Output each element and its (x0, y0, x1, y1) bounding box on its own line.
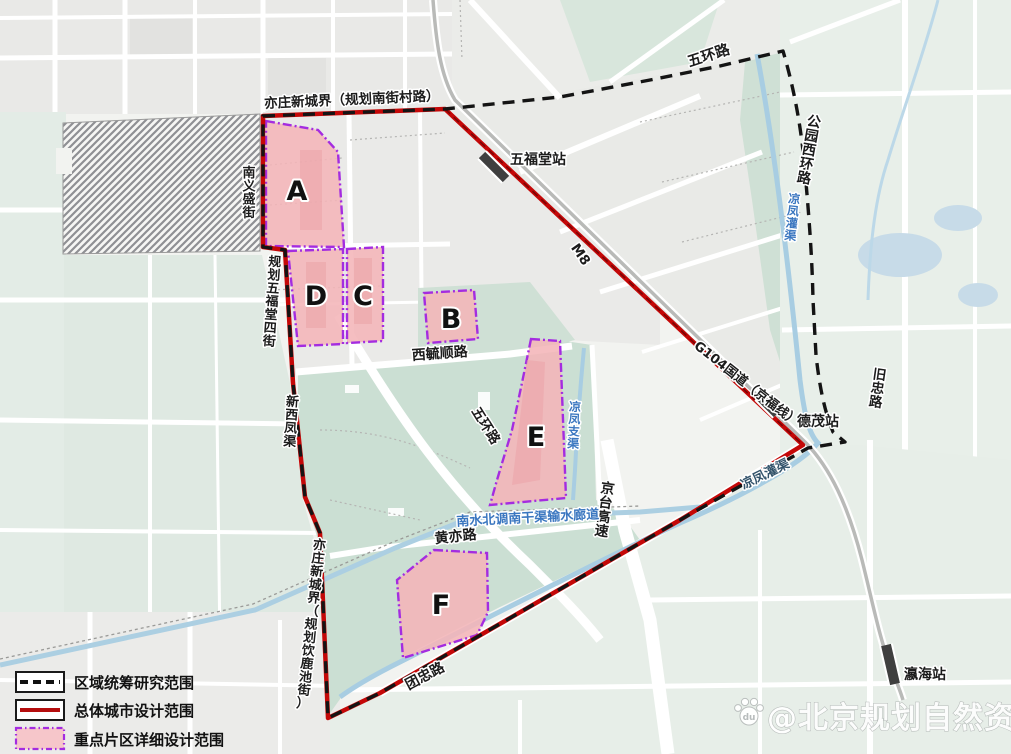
legend-detail-label: 重点片区详细设计范围 (74, 731, 224, 749)
zone-a-label: A (287, 176, 308, 207)
legend-item-research: 区域统筹研究范围 (16, 672, 194, 692)
legend: 区域统筹研究范围 总体城市设计范围 重点片区详细设计范围 (16, 672, 224, 749)
zone-d-label: D (305, 281, 327, 312)
map-canvas: 亦庄新城界（规划南街村路） 亦庄新城界（规划饮鹿池街） 五环路 五环路 公园西环… (0, 0, 1011, 754)
hatched-area (56, 114, 260, 254)
nanyisheng-label: 南义盛街 (241, 165, 256, 221)
yinghai-station-label: 瀛海站 (903, 666, 946, 683)
zone-f-label: F (432, 590, 450, 621)
watermark: du @北京规划自然资源 (735, 698, 1011, 736)
legend-research-label: 区域统筹研究范围 (74, 674, 194, 692)
zone-e-label: E (527, 422, 545, 453)
legend-design-label: 总体城市设计范围 (74, 702, 194, 720)
legend-item-design: 总体城市设计范围 (16, 700, 194, 720)
planning-map: 亦庄新城界（规划南街村路） 亦庄新城界（规划饮鹿池街） 五环路 五环路 公园西环… (0, 0, 1011, 754)
zone-b-label: B (441, 304, 462, 335)
watermark-text: @北京规划自然资源 (767, 701, 1011, 736)
baidu-icon-text: du (743, 713, 756, 723)
wufutang-station-label: 五福堂站 (510, 151, 566, 168)
legend-item-detail: 重点片区详细设计范围 (16, 728, 224, 749)
demao-station-label: 德茂站 (797, 413, 839, 430)
zone-c-label: C (353, 281, 373, 312)
region-east (780, 0, 1011, 470)
